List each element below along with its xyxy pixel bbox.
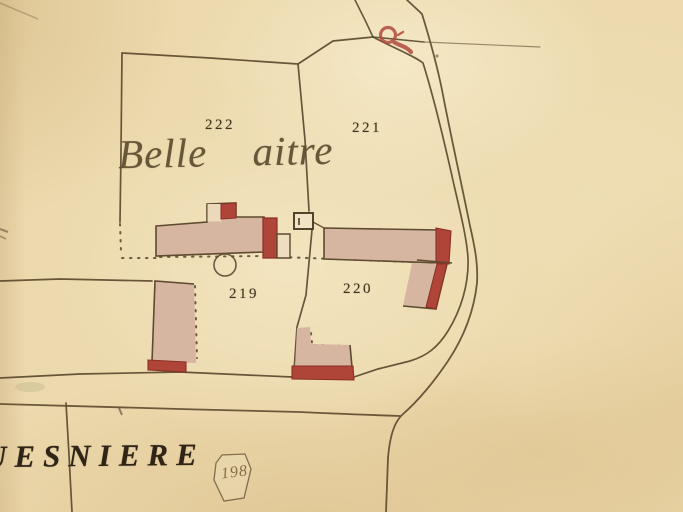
place-name-label: Belle aitre bbox=[118, 126, 334, 179]
building-red-gable bbox=[263, 218, 277, 258]
parcel-number-221: 221 bbox=[352, 120, 382, 137]
hamlet-name-label: UESNIERE bbox=[0, 437, 205, 475]
parcel-number-219: 219 bbox=[229, 286, 259, 303]
building-strip-west bbox=[148, 281, 196, 372]
building-south bbox=[292, 327, 354, 380]
building-annex bbox=[277, 234, 290, 258]
parcel-number-220: 220 bbox=[343, 281, 373, 298]
building-main-west bbox=[156, 203, 290, 276]
cadastral-map: 222 221 219 220 Belle aitre UESNIERE 198 bbox=[0, 0, 683, 512]
sheet-number-label: 198 bbox=[220, 462, 249, 483]
map-linework bbox=[0, 0, 683, 512]
outbuilding-square-icon bbox=[294, 213, 313, 229]
